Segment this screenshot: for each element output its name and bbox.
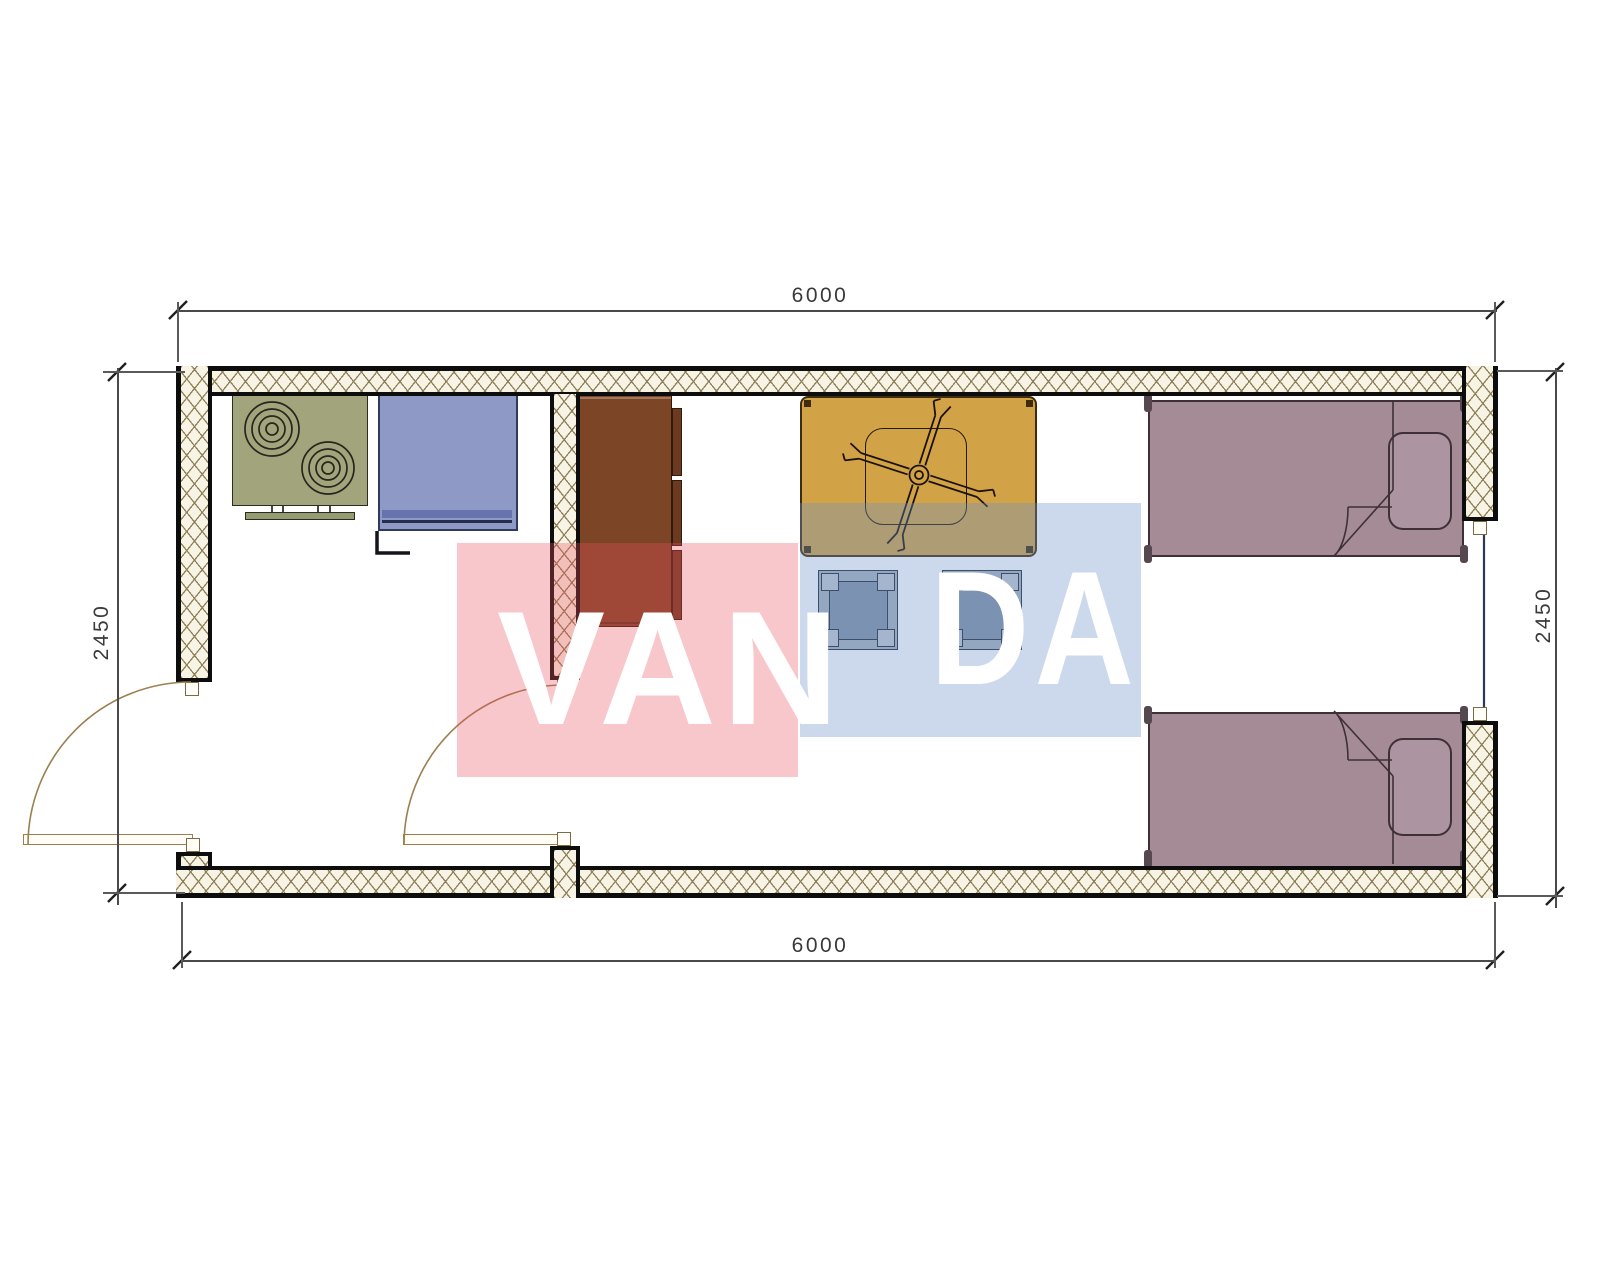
window-jamb: [1473, 707, 1487, 721]
wall-left: [176, 366, 212, 682]
appliance-front-band: [382, 510, 512, 518]
dimension-line-bottom: [182, 960, 1495, 962]
extension-line: [1494, 302, 1496, 362]
dimension-label-bottom: 6000: [720, 934, 920, 958]
dimension-label-top: 6000: [720, 284, 920, 308]
extension-line: [1497, 895, 1563, 897]
floor-plan-canvas: 6000 6000 2450 2450 VAN DA: [0, 0, 1600, 1280]
extension-line: [103, 892, 185, 894]
bed-post: [1144, 706, 1152, 724]
extension-line: [1494, 902, 1496, 968]
door-leaf-exterior: [23, 834, 193, 845]
watermark-text-right: DA: [930, 548, 1139, 710]
extension-line: [177, 302, 179, 362]
cabinet-door-strip: [672, 408, 682, 476]
dimension-label-right: 2450: [1532, 535, 1556, 695]
wall-right-upper: [1462, 366, 1498, 521]
table-corner-mark: [804, 400, 811, 407]
window-jamb: [1473, 521, 1487, 535]
extension-line: [181, 902, 183, 968]
dimension-line-left: [117, 368, 119, 905]
appliance-base-line: [382, 520, 512, 523]
table-corner-mark: [1026, 400, 1033, 407]
wall-right-lower: [1462, 721, 1498, 898]
cabinet-top-lip: [579, 397, 671, 399]
dimension-line-top: [178, 310, 1497, 312]
wall-top: [176, 366, 1497, 396]
cabinet-door-strip: [672, 480, 682, 546]
appliance-bracket: [377, 531, 410, 553]
stove-handle: [245, 512, 355, 520]
door-leaf-interior: [403, 834, 563, 845]
dimension-label-left: 2450: [90, 552, 114, 712]
wall-door-jamb-block: [550, 846, 580, 898]
bed-post: [1144, 394, 1152, 412]
door-jamb: [557, 832, 571, 846]
wall-bottom: [176, 866, 1497, 898]
bed-top-pillow: [1388, 432, 1452, 530]
bed-post: [1460, 545, 1468, 563]
stove: [232, 394, 368, 506]
door-jamb: [186, 838, 200, 852]
bed-post: [1144, 545, 1152, 563]
door-jamb: [185, 682, 199, 696]
extension-line: [1497, 370, 1563, 372]
watermark-text-left: VAN: [497, 588, 845, 750]
appliance-blue: [378, 394, 518, 531]
bed-bottom-pillow: [1388, 738, 1452, 836]
extension-line: [103, 371, 185, 373]
